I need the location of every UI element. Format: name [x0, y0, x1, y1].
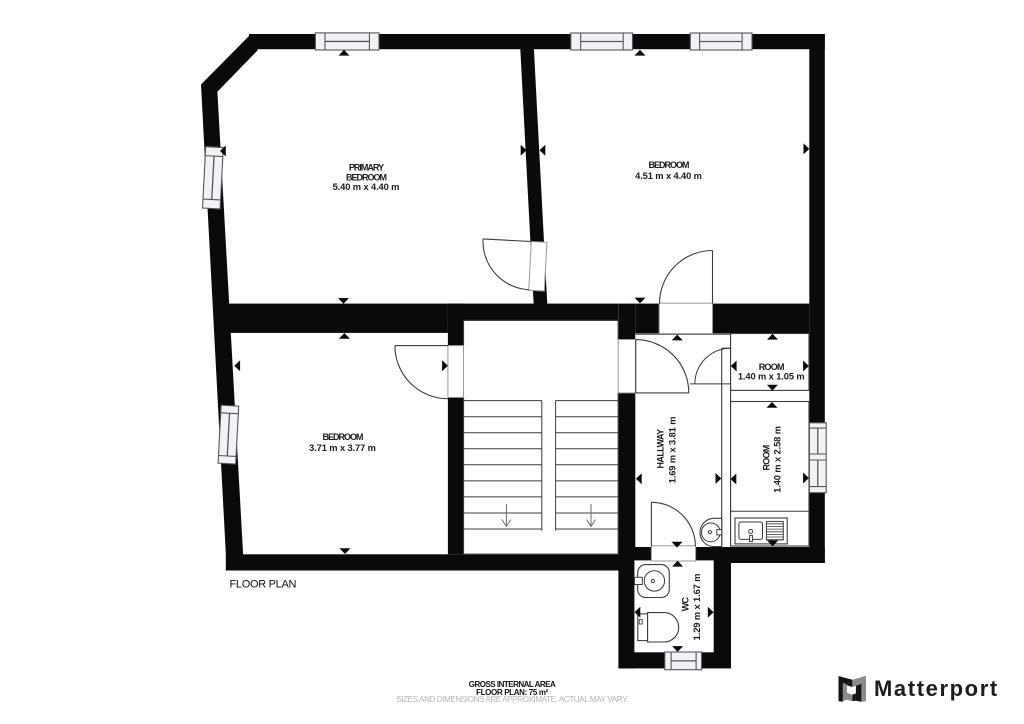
svg-text:HALLWAY: HALLWAY [656, 429, 666, 469]
svg-text:ROOM: ROOM [759, 362, 784, 372]
svg-text:Matterport: Matterport [874, 676, 999, 701]
svg-text:4.51 m x 4.40 m: 4.51 m x 4.40 m [635, 171, 702, 181]
svg-text:1.40 m x 2.58 m: 1.40 m x 2.58 m [772, 426, 782, 493]
svg-text:1.40 m x 1.05 m: 1.40 m x 1.05 m [738, 372, 805, 382]
svg-text:BEDROOM: BEDROOM [649, 160, 690, 170]
svg-text:BEDROOM: BEDROOM [346, 172, 387, 182]
svg-text:5.40 m x 4.40 m: 5.40 m x 4.40 m [333, 182, 400, 192]
svg-text:1.69 m x 3.81 m: 1.69 m x 3.81 m [668, 417, 678, 484]
svg-text:WC: WC [680, 597, 690, 612]
svg-text:ROOM: ROOM [762, 445, 772, 470]
svg-text:FLOOR PLAN: FLOOR PLAN [230, 579, 297, 591]
svg-text:SIZES AND DIMENSIONS ARE APPRO: SIZES AND DIMENSIONS ARE APPROXIMATE, AC… [396, 695, 628, 704]
svg-text:3.71 m x 3.77 m: 3.71 m x 3.77 m [309, 443, 376, 453]
svg-text:1.29 m x 1.67 m: 1.29 m x 1.67 m [692, 574, 702, 641]
svg-text:PRIMARY: PRIMARY [349, 163, 384, 173]
svg-text:BEDROOM: BEDROOM [323, 432, 364, 442]
